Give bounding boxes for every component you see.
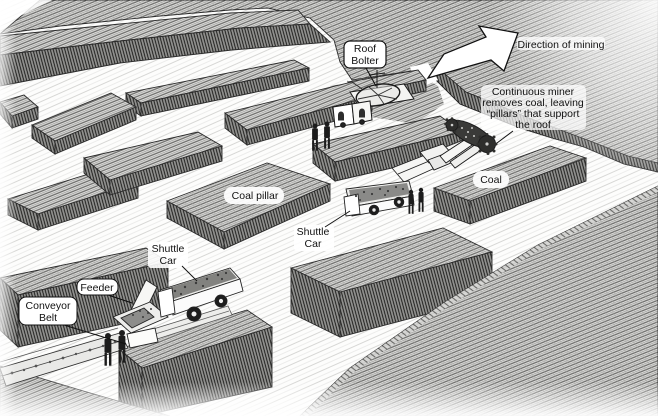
svg-text:Roof: Roof <box>354 43 376 55</box>
svg-text:Direction of mining: Direction of mining <box>518 39 605 51</box>
svg-text:Coal pillar: Coal pillar <box>232 190 279 202</box>
svg-text:Belt: Belt <box>39 312 57 324</box>
svg-text:Car: Car <box>160 255 177 267</box>
svg-text:Feeder: Feeder <box>80 282 114 294</box>
svg-text:the roof: the roof <box>515 119 551 131</box>
svg-text:Coal: Coal <box>480 174 502 186</box>
svg-text:Shuttle: Shuttle <box>297 226 330 238</box>
svg-text:Bolter: Bolter <box>351 55 379 67</box>
svg-text:Car: Car <box>305 238 322 250</box>
svg-text:Shuttle: Shuttle <box>152 243 185 255</box>
svg-text:Conveyor: Conveyor <box>26 300 71 312</box>
